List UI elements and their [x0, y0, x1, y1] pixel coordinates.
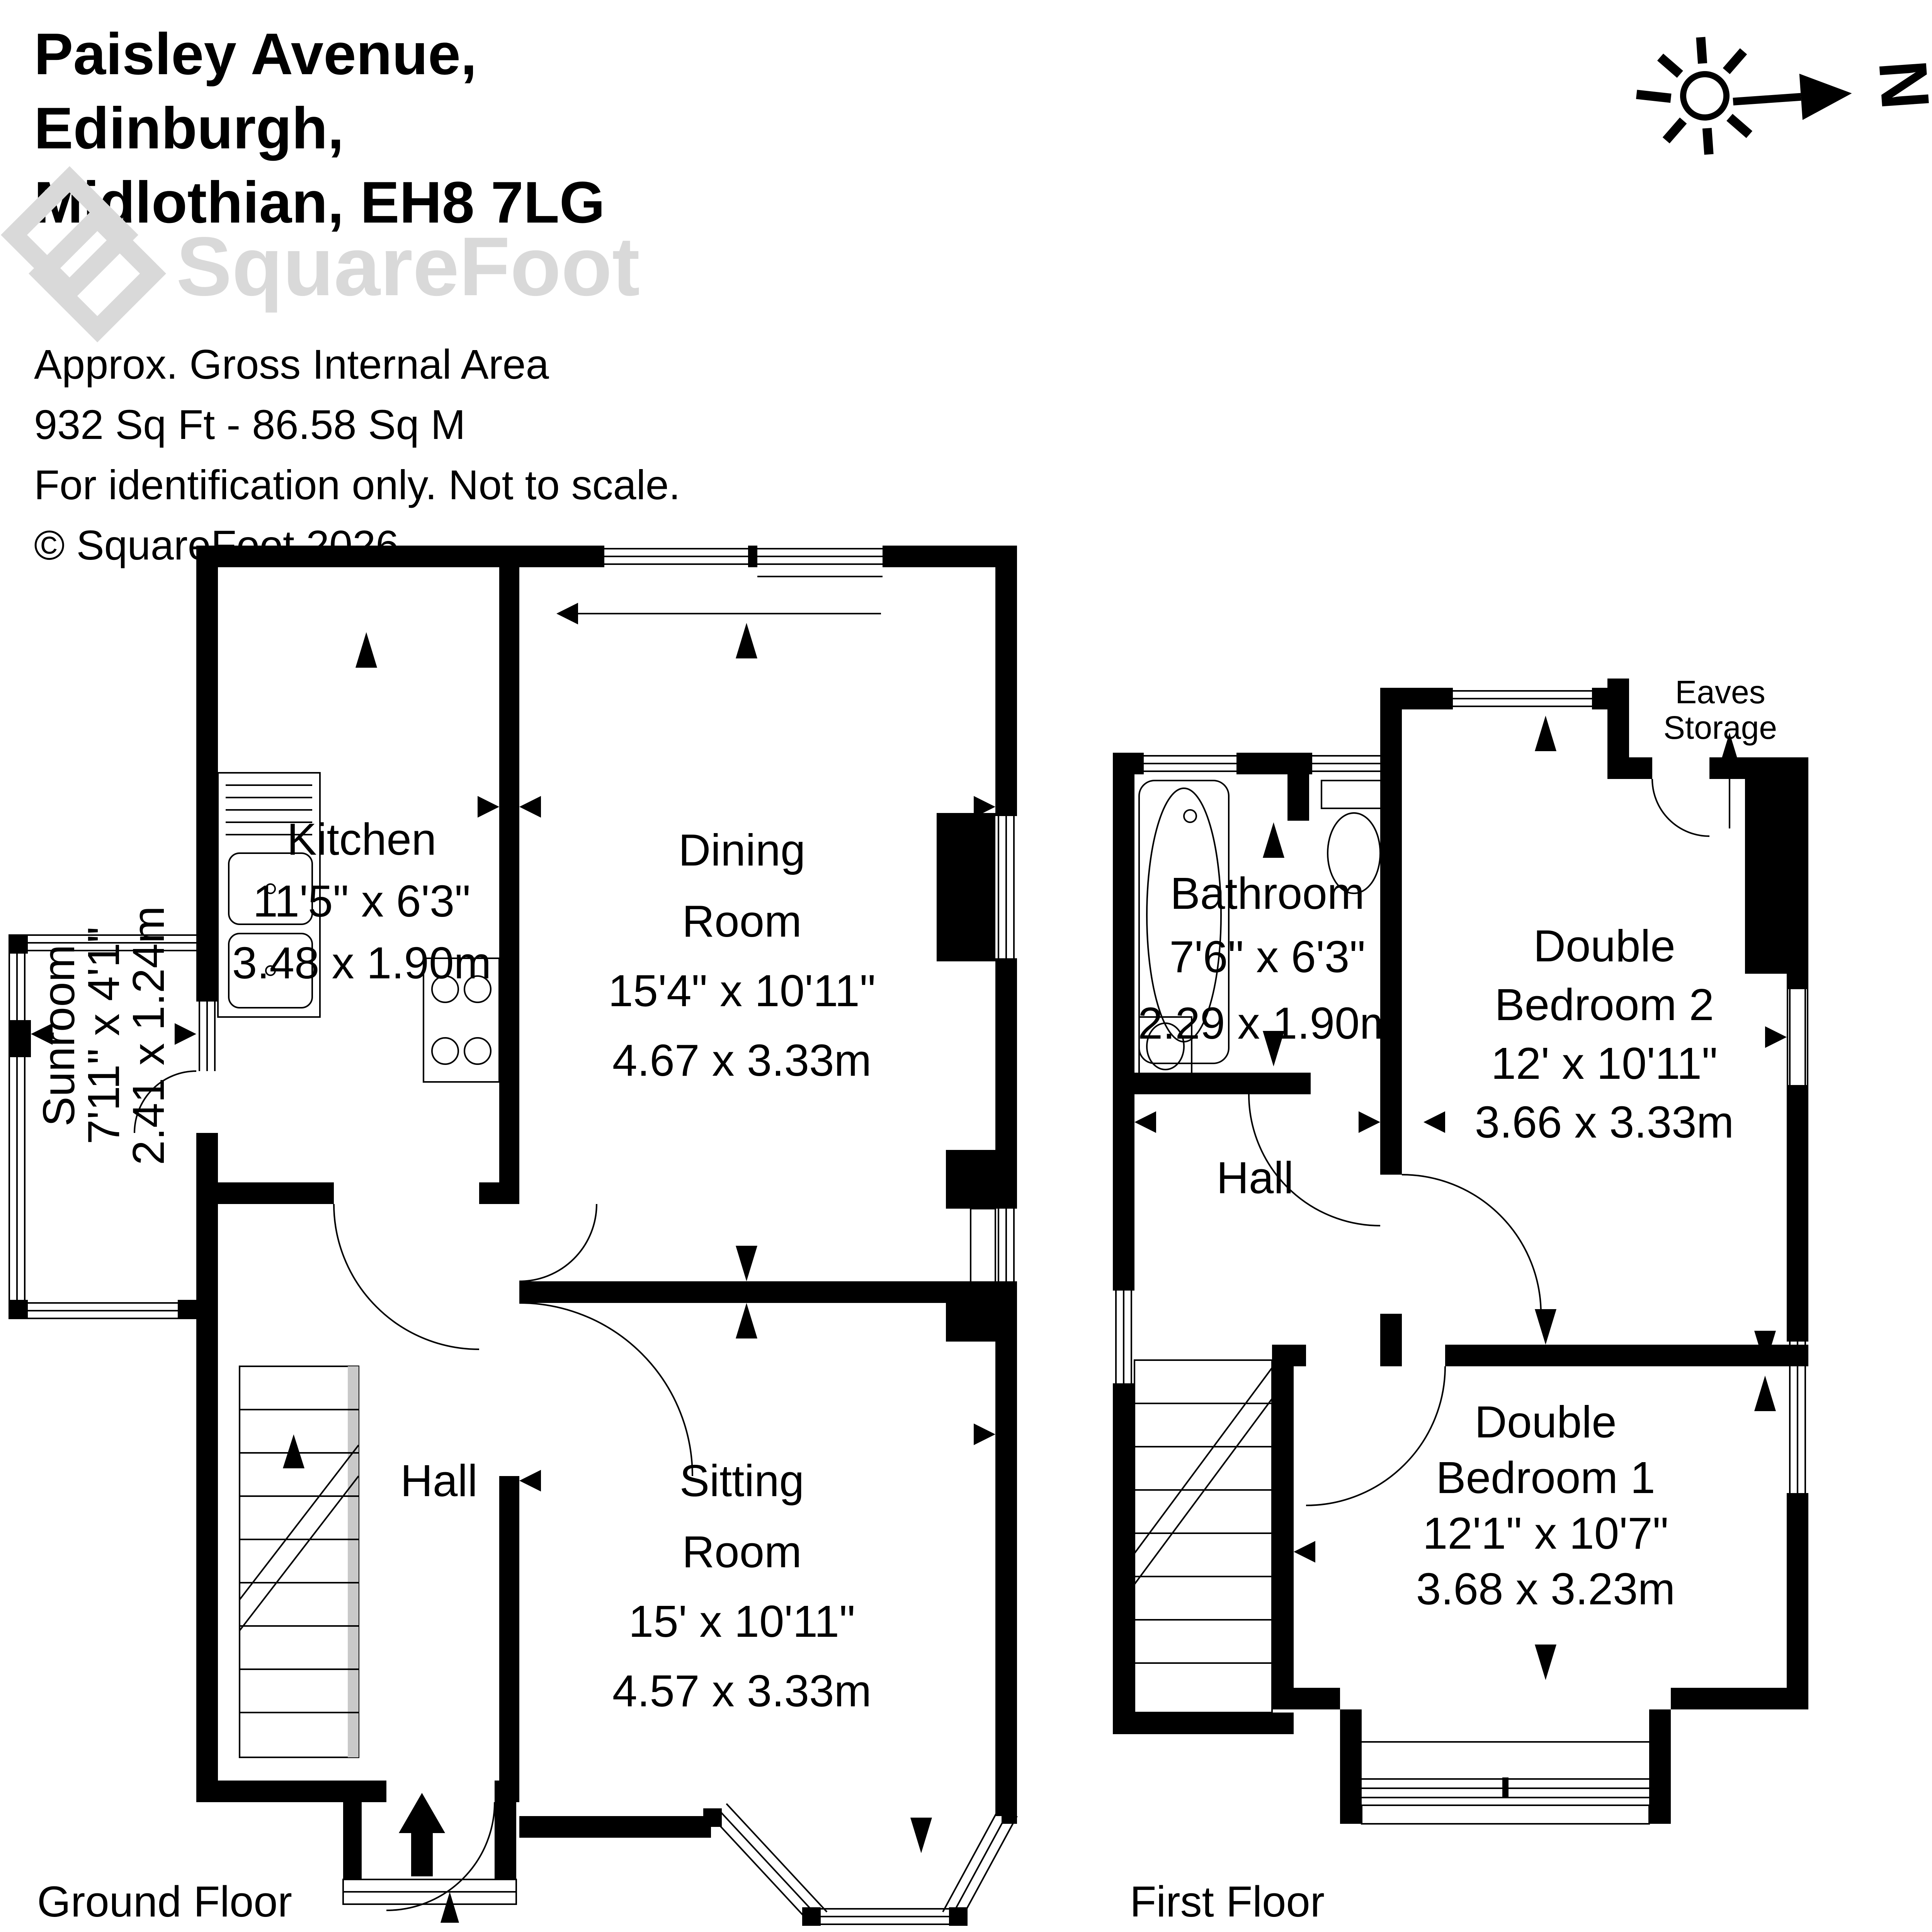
first-floor-walls [1113, 679, 1808, 1824]
north-compass-icon: N [1633, 21, 1932, 159]
floorplan-page: Paisley Avenue, Edinburgh, Midlothian, E… [0, 0, 1932, 1932]
dining-metric: 4.67 x 3.33m [612, 1035, 872, 1085]
bedroom1-door-arc [1306, 1366, 1445, 1505]
bedroom2-name-1: Double [1533, 921, 1675, 971]
sitting-name-1: Sitting [680, 1456, 804, 1506]
sitting-door-arc [519, 1303, 692, 1476]
front-door-arc [386, 1802, 495, 1910]
eaves-label-1: Eaves [1675, 674, 1765, 710]
ground-floor-walls [196, 546, 1017, 1879]
bedroom1-imperial: 12'1" x 10'7" [1423, 1508, 1668, 1558]
header: Paisley Avenue, Edinburgh, Midlothian, E… [34, 21, 605, 235]
eaves-door-arc [1652, 779, 1709, 836]
floorplan-canvas: Paisley Avenue, Edinburgh, Midlothian, E… [0, 0, 1932, 1932]
sitting-name-2: Room [682, 1527, 801, 1577]
entrance-porch [343, 1793, 516, 1923]
eaves-label-2: Storage [1663, 709, 1777, 746]
kitchen-name: Kitchen [287, 814, 437, 864]
sitting-metric: 4.57 x 3.33m [612, 1666, 872, 1716]
dining-chimney-breast [937, 813, 995, 961]
dining-imperial: 15'4" x 10'11" [608, 966, 876, 1016]
bedroom2-door-arc [1402, 1175, 1541, 1314]
kitchen-door-arc [334, 1204, 479, 1349]
ground-hall-name: Hall [400, 1456, 478, 1506]
eaves-wall-mass [1745, 768, 1787, 974]
meta-block: Approx. Gross Internal Area 932 Sq Ft - … [34, 341, 680, 568]
first-floor-caption: First Floor [1130, 1878, 1325, 1926]
sunroom-name: Sunroom [34, 945, 84, 1127]
dining-name-2: Room [682, 896, 801, 946]
bedroom1-metric: 3.68 x 3.23m [1416, 1564, 1675, 1614]
sitting-window-sill [971, 1209, 995, 1283]
first-floor-plan: Bathroom 7'6" x 6'3" 2.29 x 1.90m Double… [1113, 674, 1808, 1926]
sunroom-imperial: 7'11" x 4'1" [78, 927, 129, 1144]
ground-floor-plan: Kitchen 11'5" x 6'3" 3.48 x 1.90m Dining… [9, 546, 1017, 1926]
eaves-storage-pointer [1719, 733, 1740, 828]
first-floor-labels: Bathroom 7'6" x 6'3" 2.29 x 1.90m Double… [1138, 674, 1777, 1614]
address-line-1: Paisley Avenue, [34, 21, 477, 87]
bedroom1-name-2: Bedroom 1 [1436, 1452, 1655, 1503]
stairs-up-arrow-icon [283, 1434, 304, 1468]
sunroom-metric: 2.41 x 1.24m [123, 906, 173, 1165]
ground-floor-caption: Ground Floor [37, 1878, 292, 1926]
entrance-arrow-icon [399, 1793, 445, 1876]
first-hall-name: Hall [1216, 1153, 1294, 1203]
first-floor-stairs [1134, 1360, 1272, 1713]
north-label: N [1864, 58, 1932, 112]
first-floor-windows [1116, 691, 1807, 1824]
meta-line-1: Approx. Gross Internal Area [34, 341, 549, 388]
bathroom-imperial: 7'6" x 6'3" [1169, 932, 1365, 982]
bathroom-name: Bathroom [1170, 868, 1365, 918]
bedroom2-metric: 3.66 x 3.33m [1475, 1097, 1734, 1147]
bedroom1-window-sill [1362, 1805, 1649, 1824]
kitchen-metric: 3.48 x 1.90m [232, 938, 492, 988]
bedroom2-name-2: Bedroom 2 [1495, 980, 1714, 1030]
bedroom1-name-1: Double [1475, 1397, 1617, 1447]
meta-line-3: For identification only. Not to scale. [34, 461, 680, 508]
ground-floor-stairs [240, 1366, 359, 1757]
dining-name-1: Dining [679, 825, 806, 875]
sitting-imperial: 15' x 10'11" [629, 1596, 855, 1646]
meta-line-2: 932 Sq Ft - 86.58 Sq M [34, 401, 466, 448]
sitting-bay-window [703, 1804, 1017, 1926]
dining-door-arc [519, 1204, 597, 1281]
address-line-2: Edinburgh, [34, 95, 344, 161]
kitchen-imperial: 11'5" x 6'3" [253, 876, 470, 926]
bedroom2-imperial: 12' x 10'11" [1491, 1038, 1718, 1088]
bathroom-metric: 2.29 x 1.90m [1138, 998, 1397, 1048]
logo-wordmark: SquareFoot [176, 219, 640, 313]
